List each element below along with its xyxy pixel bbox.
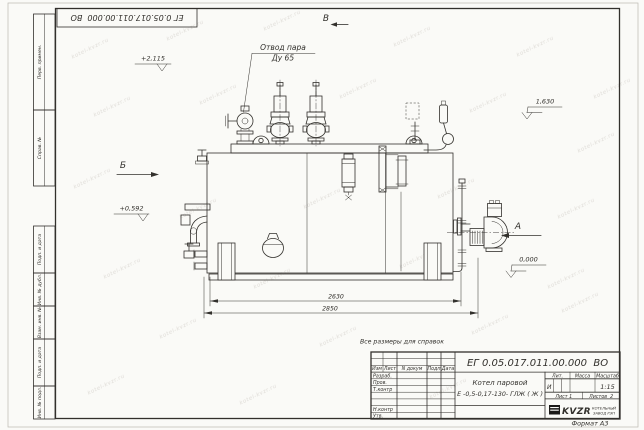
margin-label: Инв. № дубл.	[37, 274, 43, 305]
burner-assembly	[181, 150, 210, 270]
col-header: N докум	[402, 366, 423, 372]
elevation-value: +0,592	[119, 205, 143, 213]
view-label-b-left: Б	[120, 161, 126, 171]
row-label: Т.контр	[373, 387, 392, 393]
sheet-no: Лист 1	[554, 394, 572, 400]
view-label-b-top: В	[323, 14, 329, 24]
right-piping	[453, 179, 466, 272]
scale-header: Масштаб	[596, 374, 619, 380]
margin-label: Инв. № подл.	[37, 387, 43, 419]
view-label-a: А	[514, 222, 521, 232]
drawing-sheet: kotel-kvzr.rukotel-kvzr.rukotel-kvzr.ruk…	[0, 0, 644, 430]
company-name: КОТЕЛЬНЫЙ	[592, 406, 616, 411]
margin-label: Подп. и дата	[37, 234, 43, 265]
margin-label: Взам. инв. №	[37, 307, 43, 338]
elevation-value: +2,115	[141, 55, 165, 63]
row-label: Разраб.	[373, 374, 392, 380]
lit-value: И	[547, 384, 552, 391]
elevation-marks: +2,115 1,630 +0,592 0,000	[114, 55, 562, 278]
product-name: Е -0,5-0,17-130- ГЛЖ ( Ж )	[457, 391, 543, 398]
title-block: ЕГ 0.05.017.011.00.000 ВО Изм Лист N док…	[371, 352, 620, 420]
callout-text: Ду 65	[271, 54, 294, 63]
steam-valve	[226, 106, 254, 144]
dimension-value: 2630	[328, 294, 344, 301]
feed-pump	[447, 201, 516, 252]
scale-value: 1:15	[600, 383, 615, 391]
row-label: Утв.	[373, 414, 383, 420]
col-header: Подп	[428, 366, 441, 372]
supports	[218, 243, 441, 280]
row-label: Н.контр	[373, 407, 393, 413]
manhole	[263, 234, 284, 258]
logo-text: KVZR	[562, 407, 591, 417]
elevation-value: 0,000	[519, 256, 538, 264]
margin-label: Перв. примен.	[37, 45, 43, 80]
dimension-value: 2850	[322, 306, 338, 313]
format-label: Формат А3	[571, 420, 608, 428]
stamp-designation: ЕГ 0.05.017.011.00.000 ВО	[71, 13, 184, 22]
sheets-total: Листов 2	[588, 394, 613, 400]
top-left-stamp: ЕГ 0.05.017.011.00.000 ВО	[57, 9, 197, 28]
designation: ЕГ 0.05.017.011.00.000 ВО	[467, 358, 608, 369]
company-logo: KVZR КОТЕЛЬНЫЙ ЗАВОД РЭП	[549, 405, 616, 417]
margin-columns: Перв. примен. Справ. № Подп. и дата Инв.…	[34, 14, 56, 419]
boiler-body	[207, 144, 453, 280]
col-header: Дата	[441, 366, 454, 372]
row-label: Пров.	[373, 380, 387, 386]
elevation-value: 1,630	[536, 98, 555, 106]
safety-valves	[267, 80, 329, 146]
company-name: ЗАВОД РЭП	[593, 412, 615, 416]
reference-note: Все размеры для справок	[360, 339, 444, 346]
product-name: Котел паровой	[473, 379, 528, 387]
boiler-drawing	[181, 80, 516, 280]
lit-header: Лит.	[551, 374, 563, 380]
sheet-svg: Перв. примен. Справ. № Подп. и дата Инв.…	[0, 0, 644, 430]
steam-outlet-callout: Отвод пара Ду 65	[244, 43, 316, 112]
col-header: Изм	[372, 366, 382, 372]
margin-label: Справ. №	[37, 137, 43, 160]
margin-label: Подп. и дата	[37, 347, 43, 378]
massa-header: Масса	[575, 374, 590, 380]
col-header: Лист	[383, 366, 396, 372]
level-gauges	[342, 146, 408, 200]
callout-text: Отвод пара	[260, 43, 306, 52]
